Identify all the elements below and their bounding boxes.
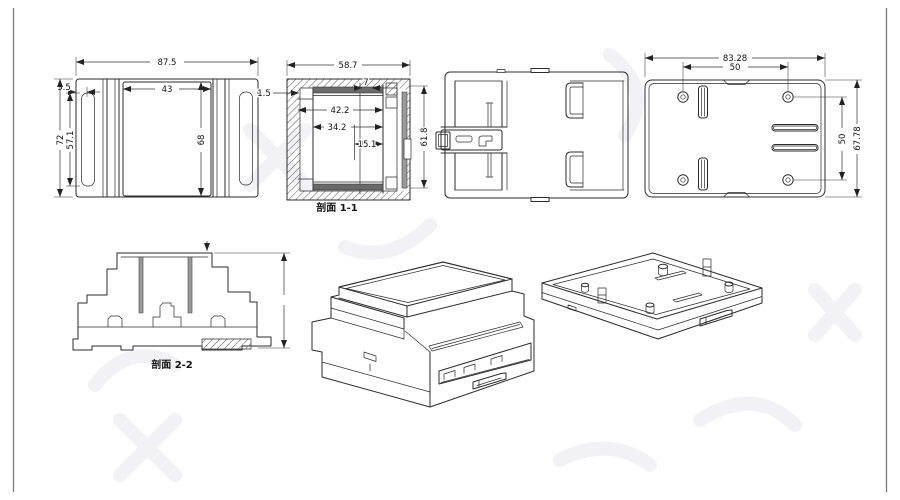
dim-back-hole-spacing-h: 50: [730, 63, 741, 73]
dim-section1-inner-c: 15.1: [358, 140, 377, 150]
corner-post: [659, 264, 668, 275]
boss: [211, 316, 225, 327]
dim-section1-inner-a: 42.2: [331, 106, 350, 116]
vertical-vent-slot: [699, 158, 708, 190]
screw-hole: [783, 92, 793, 102]
drawing-canvas: 87.5 5.5 43 72 57.1 68: [0, 0, 900, 500]
hatched-rail-foot: [202, 339, 251, 349]
dim-section1-height: 61.8: [420, 128, 430, 147]
front-view: 87.5 5.5 43 72 57.1 68: [54, 57, 258, 197]
boss: [108, 316, 122, 327]
section-view-2: 剖面 2-2: [73, 241, 290, 371]
internal-pin: [188, 257, 192, 313]
dim-section1-width: 58.7: [339, 61, 358, 71]
vertical-vent-slot: [699, 86, 708, 118]
bottom-tab-notch: [724, 193, 749, 197]
lid-groove: [429, 322, 523, 351]
dim-section1-wall: 1.5: [257, 89, 271, 99]
lid-section-bottom-band: [313, 184, 383, 190]
watermark: [95, 55, 855, 475]
corner-post: [582, 283, 589, 292]
dim-front-slot-height: 57.1: [66, 131, 76, 150]
snap-clip-post: [703, 259, 711, 276]
horizontal-vent-slot: [772, 145, 818, 152]
dim-front-width: 87.5: [158, 58, 177, 68]
side-view: [436, 69, 628, 202]
screw-hole: [678, 92, 688, 102]
technical-drawing-sheet: 87.5 5.5 43 72 57.1 68: [0, 0, 900, 500]
back-view: 83.28 50 50 67.78: [645, 53, 863, 197]
section-2-label: 剖面 2-2: [151, 358, 193, 371]
dim-front-inner-width: 43: [162, 85, 173, 95]
boss: [153, 303, 181, 327]
iso-view-assembled: [312, 262, 534, 407]
din-rail-clip: [436, 103, 507, 177]
dim-front-lid-height: 68: [197, 135, 207, 146]
dim-back-height: 67.78: [853, 126, 863, 150]
top-tab-notch: [724, 81, 749, 85]
horizontal-vent-slot: [772, 125, 818, 132]
dim-back-hole-spacing-v: 50: [838, 134, 848, 145]
side-vent-detail: [364, 352, 376, 371]
screw-hole: [678, 175, 688, 185]
internal-pin: [139, 257, 143, 313]
dim-front-height: 72: [56, 135, 66, 146]
side-bracket-top: [566, 83, 583, 118]
dim-front-edge-offset: 5.5: [57, 83, 71, 93]
iso-view-base: [542, 253, 762, 339]
side-bracket-bottom: [566, 152, 583, 187]
section-2-dimensions: [207, 241, 290, 348]
din-slider-tab: [700, 310, 732, 326]
screw-hole: [783, 175, 793, 185]
section-view-1: 58.7 1.5 7 42.2 34.2 15.1 61.8 剖面 1-1: [257, 60, 430, 214]
front-view-dimensions: 87.5 5.5 43 72 57.1 68: [54, 57, 258, 197]
floor-slot: [673, 293, 702, 302]
back-view-dimensions: 83.28 50 50 67.78: [645, 53, 863, 197]
section-1-label: 剖面 1-1: [316, 201, 358, 214]
dim-section1-step: 7: [363, 78, 368, 88]
dim-section1-inner-b: 34.2: [328, 123, 347, 133]
